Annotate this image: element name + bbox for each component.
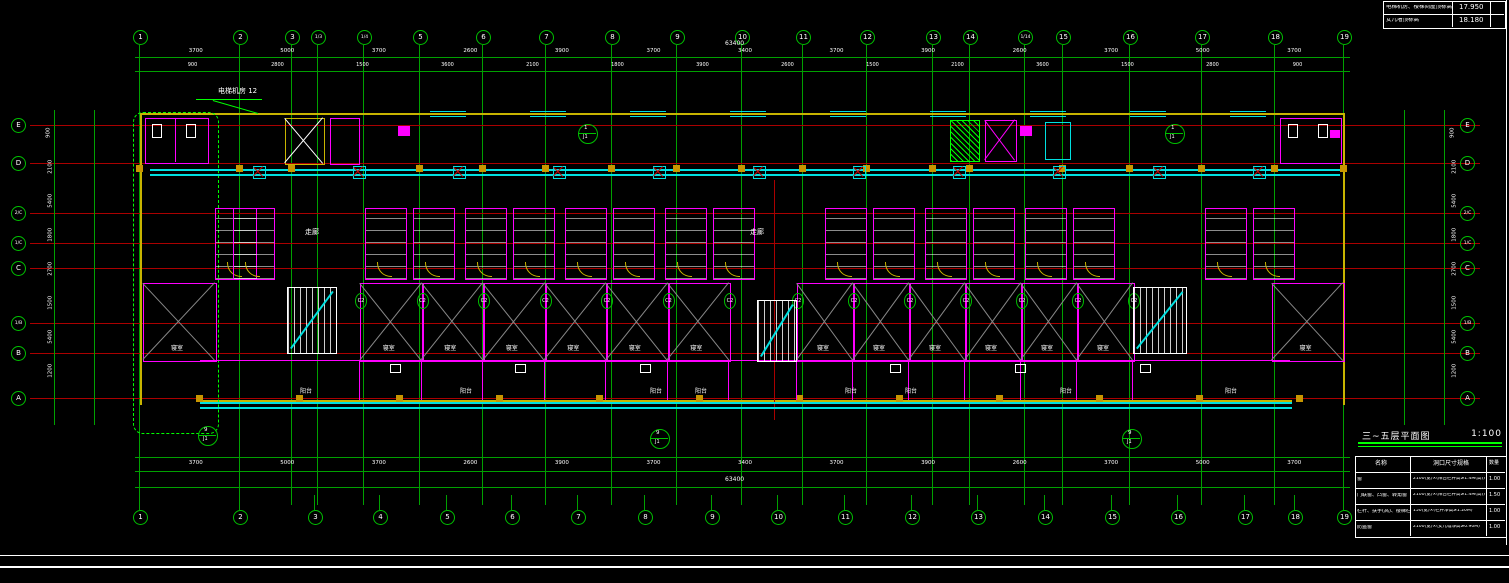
grid-bubble-bottom: 3 (308, 510, 323, 525)
dim-text-bottom: 5000 (275, 461, 299, 467)
dim-text-top: 3700 (825, 49, 849, 55)
grid-bubble-right: 1/C (1460, 236, 1475, 251)
balcony-label: 阳台 (905, 389, 917, 395)
grid-bubble-left: B (11, 346, 26, 361)
grid-bubble-bottom: 12 (905, 510, 920, 525)
dim-line-right (1404, 110, 1405, 425)
grid-bubble-bottom: 16 (1171, 510, 1186, 525)
schedule-cell-name: 门联窗、凸窗、转角窗 (1357, 493, 1410, 498)
column (738, 165, 745, 172)
grid-axis-stub (977, 495, 978, 510)
column (1271, 165, 1278, 172)
room-label: 寝室 (567, 346, 579, 352)
grid-bubble-bottom: 17 (1238, 510, 1253, 525)
toilet-left-div (175, 118, 176, 162)
dim-text-bottom: 2600 (1008, 461, 1032, 467)
dim-text-bottom: 3400 (733, 461, 757, 467)
balcony-wall (667, 360, 668, 400)
column (608, 165, 615, 172)
grid-bubble-bottom: 4 (373, 510, 388, 525)
column (1340, 165, 1347, 172)
grid-bubble-left: 2/C (11, 206, 26, 221)
dim-text-left: 5400 (48, 330, 54, 344)
grid-axis-horizontal (30, 353, 1480, 354)
column (1126, 165, 1133, 172)
grid-axis-horizontal (30, 323, 1480, 324)
washer-fixture (1140, 364, 1151, 373)
grid-bubble-bottom: 9 (705, 510, 720, 525)
window-tag: C2 (540, 293, 552, 309)
dim-text-right: 900 (1451, 128, 1457, 139)
column-bottom (1096, 395, 1103, 402)
grid-bubble-bottom: 8 (638, 510, 653, 525)
grid-bubble-top: 19 (1337, 30, 1352, 45)
dim-text-top2: 2800 (266, 63, 290, 68)
schedule-cell-name: 窗 (1357, 477, 1410, 482)
column (799, 165, 806, 172)
grid-bubble-top: 8 (605, 30, 620, 45)
washer-fixture (390, 364, 401, 373)
grid-bubble-top: 1/14 (1018, 30, 1033, 45)
schedule-row-line (1355, 520, 1505, 521)
grid-bubble-left: D (11, 156, 26, 171)
grid-axis-stub (911, 495, 912, 510)
grid-bubble-top: 12 (860, 30, 875, 45)
title-block: 三~五层平面图 1:100 (1362, 429, 1502, 442)
schedule-cell-name: 防盗窗 (1357, 525, 1410, 530)
dim-text-top: 5000 (275, 49, 299, 55)
grid-bubble-top: 18 (1268, 30, 1283, 45)
grid-axis-horizontal (30, 125, 1480, 126)
sheet-line (0, 555, 1509, 556)
grid-axis-stub (1044, 495, 1045, 510)
room-label: 寝室 (985, 346, 997, 352)
grid-bubble-left: A (11, 391, 26, 406)
room-label: 寝室 (444, 346, 456, 352)
dim-text-bottom: 2600 (458, 461, 482, 467)
grid-axis-stub (777, 495, 778, 510)
corridor-label: 走廊 (750, 229, 764, 236)
schedule-col-line (1410, 456, 1411, 536)
dim-text-top2: 1500 (1116, 63, 1140, 68)
grid-bubble-top: 1 (133, 30, 148, 45)
dim-text-right: 2700 (1452, 262, 1458, 276)
schedule-header: 洞口尺寸规格 (1433, 461, 1469, 467)
elevation-label: 女儿墙顶标高 (1386, 18, 1452, 24)
room-label: 寝室 (1300, 346, 1312, 352)
column-bottom (396, 395, 403, 402)
grid-bubble-right: E (1460, 118, 1475, 133)
room-label: 寝室 (1041, 346, 1053, 352)
column-bottom (296, 395, 303, 402)
grid-axis-stub (446, 495, 447, 510)
balcony-wall (728, 360, 729, 400)
window-tag: C2 (960, 293, 972, 309)
grid-bubble-right: 1/B (1460, 316, 1475, 331)
window-top (1130, 111, 1166, 117)
dim-text-bottom: 3700 (825, 461, 849, 467)
grid-bubble-top: 3 (285, 30, 300, 45)
dim-text-top2: 2100 (946, 63, 970, 68)
column-bottom (1196, 395, 1203, 402)
grid-axis-stub (379, 495, 380, 510)
window-top (1030, 111, 1066, 117)
grid-axis-stub (511, 495, 512, 510)
column-bottom (496, 395, 503, 402)
dim-text-bottom: 3900 (550, 461, 574, 467)
grid-bubble-top: 1/3 (311, 30, 326, 45)
detail-marker-top: 1 (1171, 126, 1175, 132)
detail-marker-bottom: J1 (203, 437, 208, 442)
balcony-label: 阳台 (845, 389, 857, 395)
column-bottom (696, 395, 703, 402)
sheet-line-thick (0, 566, 1509, 568)
window-tag: C2 (355, 293, 367, 309)
balcony-edge (200, 360, 1290, 361)
grid-bubble-top: 14 (963, 30, 978, 45)
window-top (430, 111, 466, 117)
dim-text-bottom: 3700 (1282, 461, 1306, 467)
room-label: 寝室 (506, 346, 518, 352)
detail-marker-top: 9 (1128, 431, 1132, 437)
dim-text-bottom: 3700 (1099, 461, 1123, 467)
schedule-cell-qty: 1.00 (1489, 525, 1500, 530)
elevation-box-col (1490, 1, 1491, 27)
column (288, 165, 295, 172)
grid-axis-stub (1343, 495, 1344, 510)
schedule-cell-qty: 1.00 (1489, 477, 1500, 482)
balcony-label: 阳台 (460, 389, 472, 395)
grid-bubble-right: D (1460, 156, 1475, 171)
title-underline (1358, 442, 1502, 444)
schedule-header: 名称 (1375, 461, 1387, 467)
washer-fixture (1015, 364, 1026, 373)
grid-bubble-top: 9 (670, 30, 685, 45)
column-bottom (596, 395, 603, 402)
detail-marker-top: 9 (204, 428, 208, 434)
schedule-cell-spec: 150(宽)×(栏杆净高≥1.20M) (1413, 509, 1486, 514)
corridor-bottom-line (200, 402, 1292, 404)
toilet-fixture (1318, 124, 1328, 138)
dim-line-bottom (135, 487, 1350, 488)
elevator-note: 电梯机房 12 (218, 88, 257, 95)
dim-text-bottom: 3700 (184, 461, 208, 467)
grid-bubble-left: 1/C (11, 236, 26, 251)
duct-solid (398, 126, 410, 136)
detail-marker-bottom: J1 (655, 440, 660, 445)
dim-text-top2: 1500 (351, 63, 375, 68)
dim-line-bottom (135, 457, 1350, 458)
window-tag: C2 (663, 293, 675, 309)
schedule-cell-spec: 2100(宽)×(阳台栏杆高≥1.4M(高)) (1413, 493, 1486, 498)
dim-text-right: 5400 (1452, 330, 1458, 344)
drawing-scale: 1:100 (1471, 429, 1502, 442)
schedule-col-line (1486, 456, 1487, 536)
elevator-note-underline (196, 99, 262, 100)
dim-text-top2: 900 (181, 63, 205, 68)
sheet-line-right (1506, 0, 1507, 545)
dim-total-top: 63400 (725, 41, 744, 47)
column-bottom (896, 395, 903, 402)
room-label: 寝室 (929, 346, 941, 352)
column (673, 165, 680, 172)
dim-text-top: 2600 (458, 49, 482, 55)
dim-text-top2: 2800 (1201, 63, 1225, 68)
dim-text-bottom: 3700 (367, 461, 391, 467)
dim-text-left: 900 (47, 128, 53, 139)
dim-text-top: 3900 (916, 49, 940, 55)
dim-text-left: 5400 (48, 194, 54, 208)
column (1198, 165, 1205, 172)
grid-bubble-bottom: 10 (771, 510, 786, 525)
elevation-value: 17.950 (1459, 4, 1484, 11)
schedule-cell-name: 栏杆、扶手(高)、楼梯栏杆 (1357, 509, 1410, 514)
balcony-label: 阳台 (695, 389, 707, 395)
detail-marker (1122, 429, 1142, 449)
dim-text-top2: 900 (1286, 63, 1310, 68)
schedule-cell-qty: 1.00 (1489, 509, 1500, 514)
dim-text-right: 2100 (1452, 160, 1458, 174)
dim-text-top2: 3600 (436, 63, 460, 68)
dim-text-right: 1800 (1452, 228, 1458, 242)
dim-text-left: 1200 (48, 364, 54, 378)
dim-line-top (135, 57, 1350, 58)
toilet-fixture (1288, 124, 1298, 138)
dim-text-top2: 3600 (1031, 63, 1055, 68)
corridor-label: 走廊 (305, 229, 319, 236)
room-label: 寝室 (383, 346, 395, 352)
grid-axis-stub (1294, 495, 1295, 510)
window-top (1230, 111, 1266, 117)
grid-bubble-bottom: 5 (440, 510, 455, 525)
grid-axis-horizontal (30, 163, 1480, 164)
balcony-label: 阳台 (300, 389, 312, 395)
dim-text-top: 3700 (184, 49, 208, 55)
window-top (730, 111, 766, 117)
grid-axis-stub (139, 495, 140, 510)
grid-axis-stub (1111, 495, 1112, 510)
balcony-wall (421, 360, 422, 400)
room-label: 寝室 (629, 346, 641, 352)
schedule-header: 数量 (1489, 461, 1499, 466)
balcony-wall (1076, 360, 1077, 400)
grid-bubble-right: 2/C (1460, 206, 1475, 221)
dim-text-top2: 1500 (861, 63, 885, 68)
dim-text-top2: 2600 (776, 63, 800, 68)
dim-text-right: 1500 (1452, 296, 1458, 310)
elevator-note-leader (213, 100, 258, 114)
grid-bubble-right: B (1460, 346, 1475, 361)
dim-line-top (135, 71, 1350, 72)
dim-text-left: 2700 (48, 262, 54, 276)
grid-bubble-bottom: 14 (1038, 510, 1053, 525)
elevation-value: 18.180 (1459, 17, 1484, 24)
duct-solid (1020, 126, 1032, 136)
window-tag: C2 (904, 293, 916, 309)
dim-line-left (54, 110, 55, 425)
grid-bubble-bottom: 1 (133, 510, 148, 525)
dim-line-right (1444, 110, 1445, 425)
dim-text-top: 3900 (550, 49, 574, 55)
detail-marker-bottom: J1 (583, 135, 588, 140)
balcony-wall (544, 360, 545, 400)
grid-bubble-top: 5 (413, 30, 428, 45)
shaft-left (330, 118, 360, 165)
grid-bubble-top: 7 (539, 30, 554, 45)
grid-axis-stub (1177, 495, 1178, 510)
window-tag: C2 (478, 293, 490, 309)
dim-text-right: 5400 (1452, 194, 1458, 208)
room-label: 寝室 (1097, 346, 1109, 352)
grid-bubble-bottom: 6 (505, 510, 520, 525)
grid-bubble-bottom: 13 (971, 510, 986, 525)
grid-axis-stub (314, 495, 315, 510)
toilet-fixture (186, 124, 196, 138)
grid-bubble-right: C (1460, 261, 1475, 276)
detail-marker-bottom: J1 (1127, 440, 1132, 445)
grid-axis-stub (644, 495, 645, 510)
grid-bubble-bottom: 11 (838, 510, 853, 525)
dim-text-top2: 2100 (521, 63, 545, 68)
window-tag: C2 (417, 293, 429, 309)
detail-marker (650, 429, 670, 449)
grid-bubble-top: 2 (233, 30, 248, 45)
grid-bubble-top: 11 (796, 30, 811, 45)
dim-line-bottom (135, 471, 1350, 472)
column-bottom (796, 395, 803, 402)
dim-text-bottom: 3700 (641, 461, 665, 467)
grid-axis-stub (1244, 495, 1245, 510)
grid-bubble-left: 1/B (11, 316, 26, 331)
column (479, 165, 486, 172)
window-tag: C2 (724, 293, 736, 309)
dim-text-top: 3700 (1282, 49, 1306, 55)
balcony-label: 阳台 (1225, 389, 1237, 395)
grid-bubble-top: 16 (1123, 30, 1138, 45)
dim-text-top: 2600 (1008, 49, 1032, 55)
dim-text-top: 3700 (1099, 49, 1123, 55)
detail-marker (198, 426, 218, 446)
dim-text-left: 1800 (48, 228, 54, 242)
column (929, 165, 936, 172)
grid-bubble-right: A (1460, 391, 1475, 406)
elevation-box-line (1383, 14, 1504, 15)
shaft-cyan (1045, 122, 1071, 160)
window-tag: C2 (1072, 293, 1084, 309)
window-tag: C2 (601, 293, 613, 309)
grid-axis-stub (711, 495, 712, 510)
grid-bubble-left: C (11, 261, 26, 276)
balcony-wall (605, 360, 606, 400)
dim-text-top: 3700 (641, 49, 665, 55)
grid-axis-horizontal (30, 398, 1480, 399)
column (966, 165, 973, 172)
washer-fixture (515, 364, 526, 373)
room-label: 寝室 (171, 346, 183, 352)
washer-fixture (640, 364, 651, 373)
window-top (530, 111, 566, 117)
grid-bubble-bottom: 2 (233, 510, 248, 525)
balcony-wall (482, 360, 483, 400)
drawing-title: 三~五层平面图 (1362, 429, 1431, 442)
grid-bubble-bottom: 19 (1337, 510, 1352, 525)
dim-text-top: 3700 (367, 49, 391, 55)
window-top (930, 111, 966, 117)
detail-marker (578, 124, 598, 144)
schedule-row-line (1355, 504, 1505, 505)
balcony-label: 阳台 (1060, 389, 1072, 395)
dim-text-right: 1200 (1452, 364, 1458, 378)
schedule-row-line (1355, 488, 1505, 489)
dim-text-top2: 1800 (606, 63, 630, 68)
balcony-wall (359, 360, 360, 400)
column (236, 165, 243, 172)
dim-text-top2: 3900 (691, 63, 715, 68)
grid-bubble-bottom: 15 (1105, 510, 1120, 525)
dim-text-bottom: 5000 (1191, 461, 1215, 467)
elevation-label: 电梯机房、楼梯间屋顶标高 (1386, 5, 1452, 11)
detail-marker-bottom: J1 (1170, 135, 1175, 140)
balcony-wall (796, 360, 797, 400)
column-bottom (996, 395, 1003, 402)
dim-total-bottom: 63400 (725, 477, 744, 483)
window-tag: C2 (1016, 293, 1028, 309)
detail-marker-top: 9 (656, 431, 660, 437)
detail-marker-top: 1 (584, 126, 588, 132)
title-underline-2 (1358, 446, 1502, 447)
floor-plan-canvas: 三~五层平面图 1:100 1231/31/45678910111213141/… (0, 0, 1509, 583)
window-tag: C2 (848, 293, 860, 309)
column (416, 165, 423, 172)
dim-line-left (94, 110, 95, 425)
window-top (830, 111, 866, 117)
schedule-cell-spec: 2100(宽)×(阳台栏杆高≥1.4M(高)) (1413, 477, 1486, 482)
dim-text-top: 5000 (1191, 49, 1215, 55)
dim-text-top: 3400 (733, 49, 757, 55)
grid-bubble-top: 13 (926, 30, 941, 45)
grid-bubble-top: 15 (1056, 30, 1071, 45)
dim-text-left: 1500 (48, 296, 54, 310)
dim-text-left: 2100 (48, 160, 54, 174)
grid-bubble-bottom: 18 (1288, 510, 1303, 525)
grid-bubble-left: E (11, 118, 26, 133)
balcony-wall (964, 360, 965, 400)
column (542, 165, 549, 172)
room-label: 寝室 (873, 346, 885, 352)
grid-axis-stub (239, 495, 240, 510)
schedule-cell-qty: 1.50 (1489, 493, 1500, 498)
room-label: 寝室 (690, 346, 702, 352)
schedule-cell-spec: 2100(宽)×(女儿墙净高≥0.90M) (1413, 525, 1486, 530)
grid-bubble-bottom: 7 (571, 510, 586, 525)
grid-bubble-top: 17 (1195, 30, 1210, 45)
room-label: 寝室 (817, 346, 829, 352)
column-bottom (1296, 395, 1303, 402)
grid-axis-stub (577, 495, 578, 510)
schedule-row-line (1355, 472, 1505, 473)
grid-bubble-top: 1/4 (357, 30, 372, 45)
elevation-box-col (1452, 1, 1453, 27)
toilet-fixture (152, 124, 162, 138)
column (136, 165, 143, 172)
window-top (630, 111, 666, 117)
dim-text-bottom: 3900 (916, 461, 940, 467)
washer-fixture (890, 364, 901, 373)
hatch-green (950, 120, 980, 162)
detail-marker (1165, 124, 1185, 144)
column-bottom (196, 395, 203, 402)
balcony-wall (1132, 360, 1133, 400)
